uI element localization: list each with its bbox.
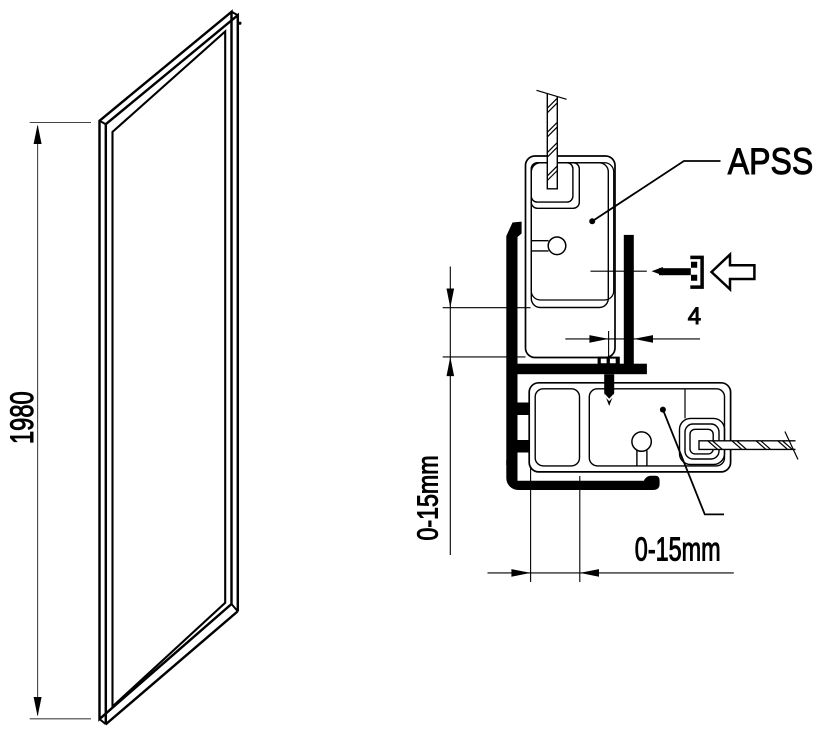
svg-text:1980: 1980 xyxy=(5,391,40,444)
svg-text:APSS: APSS xyxy=(728,142,813,183)
svg-text:0-15mm: 0-15mm xyxy=(635,531,721,568)
svg-text:0-15mm: 0-15mm xyxy=(411,455,444,540)
svg-text:4: 4 xyxy=(688,303,701,330)
